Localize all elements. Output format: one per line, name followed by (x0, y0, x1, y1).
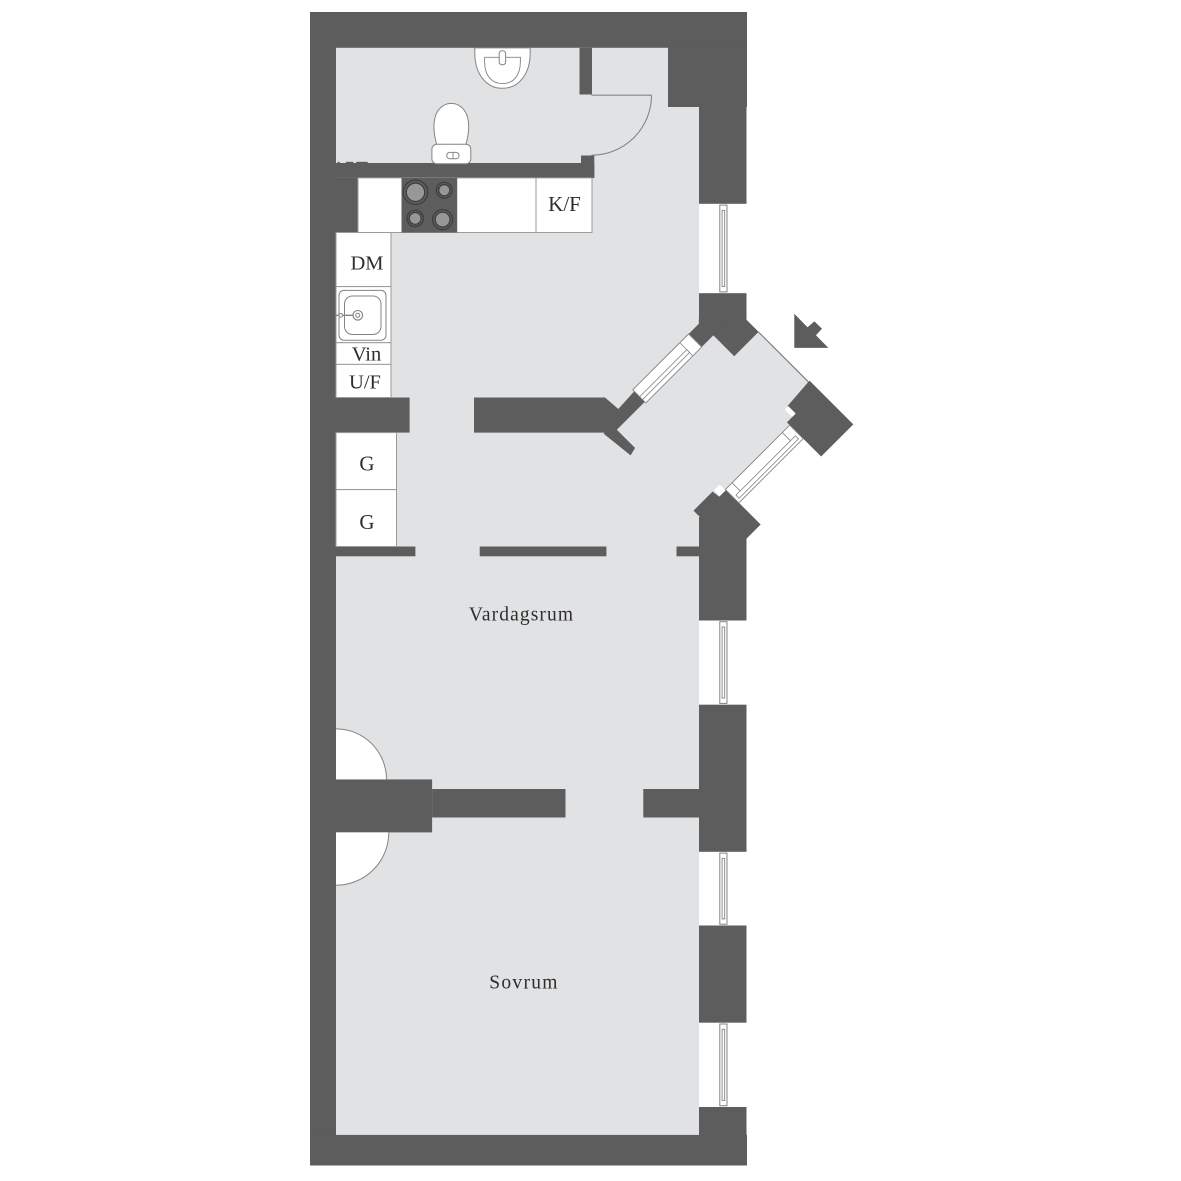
svg-text:DM: DM (350, 253, 383, 275)
svg-text:Sovrum: Sovrum (489, 973, 559, 994)
svg-text:G: G (359, 510, 374, 534)
svg-text:Vardagsrum: Vardagsrum (469, 604, 574, 625)
svg-text:G: G (359, 452, 374, 476)
svg-text:K/F: K/F (548, 192, 581, 216)
svg-text:U/F: U/F (349, 371, 381, 393)
svg-text:Vin: Vin (352, 343, 382, 365)
